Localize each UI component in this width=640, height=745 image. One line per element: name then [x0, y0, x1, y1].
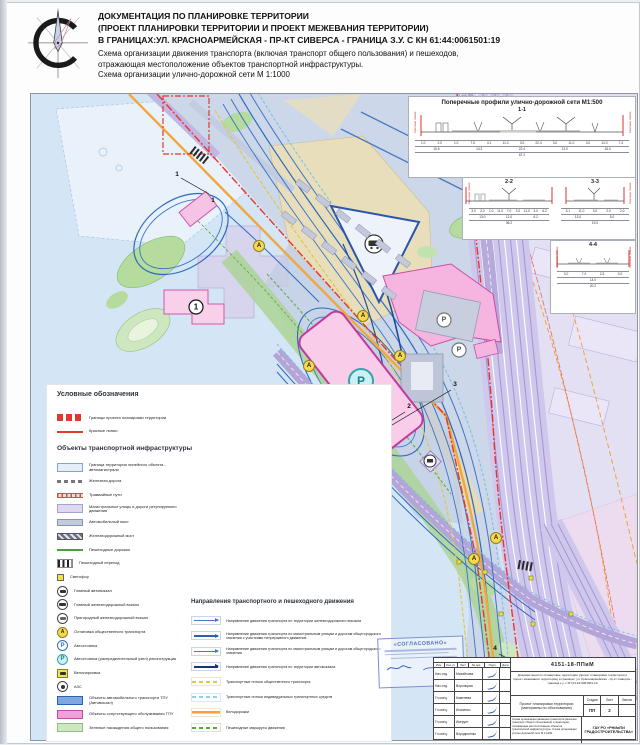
- swatch-arr-mag: [191, 647, 221, 656]
- legend-item-label: Автостоянка: [74, 644, 97, 648]
- swatch-dash-cyan: [191, 693, 221, 702]
- title-block: Изм.Кол.уч.Лист№ док.Подп.Дата Нач.отд.М…: [433, 657, 636, 740]
- suburban-station-icon: [57, 613, 68, 624]
- stage-label: Стадия: [584, 696, 601, 704]
- dimension-value: 6.2: [522, 215, 549, 220]
- titleblock-row: Нач.отд.Воронцова: [434, 680, 510, 692]
- legend-item-label: Красные линии: [89, 429, 117, 433]
- legend-item: Главный железнодорожный вокзал: [57, 598, 189, 612]
- legend-item: Пригородный железнодорожный вокзал: [57, 612, 189, 626]
- signature: [486, 730, 497, 738]
- scan-edge-shadow: [0, 0, 7, 744]
- dimension-row: 15.614.322.413.015.4: [415, 146, 629, 152]
- signature: [486, 682, 497, 690]
- legend-item: Границы проекта планировки территории: [57, 411, 217, 425]
- titleblock-header-cell: Дата: [501, 663, 510, 667]
- legend-item: Транспортные потоки общественного трансп…: [191, 674, 389, 689]
- legend-item: Автомобильный мост: [57, 516, 189, 530]
- legend-item: Зеленые насаждения общего пользования: [57, 721, 189, 735]
- swatch-red-blocks: [57, 414, 83, 421]
- legend-item: Граница территории линейного объекта - а…: [57, 461, 189, 475]
- signature: [486, 718, 497, 726]
- legend-item: Направление движения транспорта по магис…: [191, 628, 389, 643]
- red-lines-label: Красные линии: [628, 112, 632, 133]
- legend-item-label: Главный автовокзал: [74, 589, 112, 593]
- profiles-panel-3: 4-4 Красные линии Красные линии 3.07.02.…: [550, 240, 636, 314]
- role-cell: Нач.отд.: [434, 680, 455, 691]
- swatch-tram-line: [57, 493, 83, 498]
- swatch-arr-avto: [191, 662, 221, 671]
- bike-parking-icon: [57, 669, 68, 678]
- section-label: 3-3: [555, 179, 635, 185]
- profile-section-1-1: 1-1 Красные линии Красные линии 1.02.01.…: [409, 107, 635, 157]
- dimension-value: 1.0: [448, 141, 464, 146]
- name-cell: Имгрунт: [455, 716, 483, 727]
- dimension-value: 2.0: [615, 209, 629, 214]
- role-cell: Нач.отд.: [434, 668, 455, 679]
- cut-label-1: 1: [211, 197, 215, 204]
- profile-drawing-1-1: [416, 114, 628, 140]
- legend-item: Транспортные потоки индивидуальных транс…: [191, 689, 389, 704]
- glyph: [61, 685, 65, 689]
- approval-stamp-title: «СОГЛАСОВАНО»: [378, 640, 462, 649]
- dimension-value: 11.0: [575, 209, 589, 214]
- dimension-value: 22.4: [530, 141, 546, 146]
- role-cell: Гл.спец.: [434, 728, 455, 739]
- dimension-value: 15.4: [586, 147, 629, 152]
- swatch-box-purple: [57, 504, 83, 513]
- swatch-arr-zhd: [191, 616, 221, 625]
- dimension-row: 3.02.01.011.07.03.011.03.06.2: [469, 208, 549, 214]
- date-cell: [500, 704, 510, 715]
- red-lines-label: Красные линии: [628, 183, 632, 204]
- legend-item-label: Главный железнодорожный вокзал: [74, 603, 139, 607]
- glyph: [59, 603, 66, 607]
- dimension-value: 3.0: [580, 141, 596, 146]
- legend-item: Магистральные улицы и дороги регулируемо…: [57, 502, 189, 516]
- document-description: Документация по планировке территории (п…: [510, 672, 635, 696]
- signature-cell: [483, 728, 500, 739]
- swatch-box-green: [57, 723, 83, 732]
- red-lines-label: Красные линии: [467, 183, 471, 204]
- date-cell: [500, 668, 510, 679]
- red-lines-label: Красные линии: [413, 112, 417, 133]
- dimension-total: 87.2: [415, 152, 629, 158]
- legend-panel: Условные обозначения Границы проекта пла…: [46, 384, 392, 742]
- legend-objects-list: Граница территории линейного объекта - а…: [57, 461, 189, 735]
- role-cell: Гл.спец.: [434, 692, 455, 703]
- titleblock-row: Гл.спец.Имгрунт: [434, 716, 510, 728]
- date-cell: [500, 716, 510, 727]
- legend-item: Железная дорога: [57, 475, 189, 489]
- doc-subtitle-line: (ПРОЕКТ ПЛАНИРОВКИ ТЕРРИТОРИИ И ПРОЕКТ М…: [98, 22, 636, 34]
- name-cell: Каменева: [455, 692, 483, 703]
- dimension-value: 3.0: [611, 272, 629, 277]
- legend-item: Пешеходный переход: [57, 557, 189, 571]
- swatch-bridge-auto: [57, 519, 83, 526]
- titleblock-row: Нач.отд.Михайлова: [434, 668, 510, 680]
- document-number: 4151-18-ППиМ: [510, 658, 635, 672]
- dimension-value: 3.0: [513, 209, 522, 214]
- stop-label: А: [257, 243, 262, 249]
- arrow-glyph: [194, 666, 218, 668]
- dimension-value: 3.0: [588, 209, 602, 214]
- sheet-name: Схема организации движения транспорта (в…: [510, 717, 582, 743]
- dimension-value: 14.0: [596, 141, 612, 146]
- dimension-value: 13.0: [469, 215, 496, 220]
- arrow-glyph: [194, 620, 218, 621]
- titleblock-row: Гл.спец.Каменева: [434, 692, 510, 704]
- stop-label: А: [494, 535, 499, 541]
- cut-label-1: 1: [175, 171, 179, 178]
- north-compass: [26, 6, 90, 82]
- dimension-value: 3.1: [561, 209, 575, 214]
- dimension-value: 3.0: [547, 141, 563, 146]
- section-label: 4-4: [551, 242, 635, 248]
- legend-item-label: Транспортные потоки общественного трансп…: [226, 680, 310, 684]
- project-name: Проект планировки территории (материалы …: [510, 696, 584, 716]
- name-cell: Воронцова: [455, 680, 483, 691]
- date-cell: [500, 692, 510, 703]
- scheme-desc-line2: отражающая местоположение объектов транс…: [98, 60, 636, 71]
- dimension-value: 7.0: [505, 209, 514, 214]
- dimension-value: 15.6: [415, 147, 458, 152]
- legend-item: Объекты сопутствующего обслуживания ТПУ: [57, 707, 189, 721]
- profile-section-3-3: 3-3 Красные линии 3.111.03.02.02.0 13.05…: [555, 178, 635, 239]
- parking-label: Р: [442, 317, 447, 324]
- arrow-glyph: [194, 651, 218, 652]
- stage-table: Стадия Лист Листов ПП 2: [584, 696, 635, 716]
- date-cell: [500, 680, 510, 691]
- legend-item: Трамвайные пути: [57, 488, 189, 502]
- title-block-info: 4151-18-ППиМ Документация по планировке …: [510, 658, 635, 739]
- swatch-red-line: [57, 431, 83, 433]
- signature: [486, 694, 497, 702]
- legend-item-label: Граница территории линейного объекта - а…: [89, 463, 189, 472]
- legend-item: Красные линии: [57, 425, 217, 439]
- legend-item: Железнодорожный мост: [57, 529, 189, 543]
- dimension-row: 14.0: [557, 277, 629, 283]
- legend-item-label: Направление движения транспорта по терри…: [226, 665, 335, 669]
- title-block-signatures: Изм.Кол.уч.Лист№ док.Подп.Дата Нач.отд.М…: [434, 658, 511, 739]
- legend-directions-list: Направление движения транспорта по терри…: [191, 613, 389, 735]
- legend-item-label: Светофор: [70, 575, 89, 579]
- legend-item-label: Пригородный железнодорожный вокзал: [74, 616, 148, 620]
- dimension-value: 6.2: [540, 209, 549, 214]
- gas-station-icon: [57, 681, 68, 692]
- legend-item-label: Пешеходный переход: [79, 561, 119, 565]
- legend-item: Объекты автомобильного транспорта ТПУ (А…: [57, 694, 189, 708]
- legend-item-label: Объекты сопутствующего обслуживания ТПУ: [89, 712, 174, 716]
- doc-title-line: ДОКУМЕНТАЦИЯ ПО ПЛАНИРОВКЕ ТЕРРИТОРИИ: [98, 10, 636, 22]
- dimension-value: 3.0: [557, 272, 575, 277]
- legend-item-label: Границы проекта планировки территории: [89, 416, 166, 420]
- legend-item-label: Автомобильный мост: [89, 520, 129, 524]
- stop-label: А: [398, 353, 403, 359]
- signature-cell: [483, 704, 500, 715]
- swatch-zebra: [57, 559, 73, 568]
- legend-item: Направление движения транспорта по магис…: [191, 644, 389, 659]
- swatch-box-blue: [57, 696, 83, 705]
- legend-item-label: Направление движения транспорта по магис…: [226, 647, 389, 655]
- profile-section-2-2: 2-2 Красные линии 3.02.01.011.07.03.011.…: [463, 178, 555, 239]
- legend-item-label: Зеленые насаждения общего пользования: [89, 726, 168, 730]
- dimension-value: 13.0: [561, 215, 595, 220]
- profile-section-4-4: 4-4 Красные линии Красные линии 3.07.02.…: [551, 242, 635, 288]
- dimension-value: 2.0: [478, 209, 487, 214]
- glyph: [60, 590, 66, 593]
- cut-label-3: 3: [453, 381, 457, 388]
- legend-item-label: Транспортные потоки индивидуальных транс…: [226, 695, 332, 699]
- legend-item: Пешеходные дорожки: [57, 543, 189, 557]
- name-cell: Вородиченко: [455, 728, 483, 739]
- legend-directions-title: Направления транспортного и пешеходного …: [191, 599, 387, 605]
- legend-item-label: Направление движения транспорта по магис…: [226, 632, 389, 640]
- dimension-value: 3.0: [531, 209, 540, 214]
- dimension-total: 20.2: [557, 283, 629, 289]
- signature-cell: [483, 668, 500, 679]
- dimension-total: 36.2: [469, 220, 549, 226]
- stop-label: А: [307, 363, 312, 369]
- dimension-value: 12.0: [496, 215, 523, 220]
- sheets-label: Листов: [619, 696, 635, 704]
- signature-cell: [483, 680, 500, 691]
- signature: [486, 706, 497, 714]
- signature-cell: [483, 692, 500, 703]
- doc-boundaries-line: В ГРАНИЦАХ:УЛ. КРАСНОАРМЕЙСКАЯ - ПР-КТ С…: [98, 34, 636, 46]
- dimension-value: 2.5: [593, 272, 611, 277]
- bus-terminal-icon: [57, 586, 68, 597]
- dimension-value: 11.0: [497, 141, 513, 146]
- legend-item-label: Велопарковка: [74, 671, 100, 675]
- dimension-total: 19.0: [561, 220, 629, 226]
- dimension-value: 13.0: [543, 147, 586, 152]
- glyph: [60, 617, 66, 620]
- red-lines-label: Красные линии: [628, 247, 632, 268]
- swatch-arr-nepr: [191, 631, 221, 640]
- cut-label-4: 4: [493, 645, 497, 652]
- swatch-green-line: [57, 549, 83, 551]
- stop-label: А: [472, 556, 477, 562]
- sheet-label: Лист: [601, 696, 618, 704]
- titleblock-header-cell: № док.: [469, 663, 485, 667]
- section-label: 1-1: [409, 107, 635, 113]
- legend-item-label: Железная дорога: [89, 479, 121, 483]
- legend-item: АОстановка общественного транспорта: [57, 625, 189, 639]
- railway-station-icon: [57, 599, 68, 610]
- document-header: ДОКУМЕНТАЦИЯ ПО ПЛАНИРОВКЕ ТЕРРИТОРИИ (П…: [98, 10, 636, 81]
- profiles-title: Поперечные профили улично-дорожной сети …: [409, 99, 635, 106]
- traffic-light-icon: [57, 574, 64, 581]
- swatch-dash-green: [191, 723, 221, 732]
- legend-objects-title: Объекты транспортной инфраструктуры: [57, 445, 192, 452]
- titleblock-row: Гл.спец.Исаченко: [434, 704, 510, 716]
- swatch-line-orange: [191, 708, 221, 717]
- legend-item-label: Велодорожки: [226, 710, 249, 714]
- dimension-value: 11.0: [522, 209, 531, 214]
- dimension-row: 1.02.01.07.54.111.03.022.43.011.03.014.0…: [415, 140, 629, 146]
- transit-stop-icon: А: [57, 627, 68, 638]
- dimension-row: 3.07.02.53.0: [557, 271, 629, 277]
- titleblock-row: Гл.спец.Вородиченко: [434, 728, 510, 739]
- legend-item: Пешеходные маршруты движения: [191, 720, 389, 735]
- titleblock-header-cell: Подп.: [485, 663, 501, 667]
- role-cell: Гл.спец.: [434, 716, 455, 727]
- legend-item-label: Магистральные улицы и дороги регулируемо…: [89, 505, 189, 514]
- legend-item-label: Остановка общественного транспорта: [74, 630, 145, 634]
- legend-item-label: Пешеходные маршруты движения: [226, 726, 285, 730]
- scheme-desc-line1: Схема организации движения транспорта (в…: [98, 49, 636, 60]
- legend-item-label: АЗС: [74, 685, 82, 689]
- arrow-glyph: [194, 635, 218, 637]
- dimension-value: 1.0: [415, 141, 431, 146]
- parking-hub-icon: Р: [57, 654, 68, 665]
- dimension-row: 13.012.06.2: [469, 214, 549, 220]
- dimension-row: 3.111.03.02.02.0: [561, 208, 629, 214]
- dimension-value: 3.0: [469, 209, 478, 214]
- legend-item-label: Автостоянка (распределительный узел) рек…: [74, 657, 176, 661]
- date-cell: [500, 728, 510, 739]
- legend-item-label: Железнодорожный мост: [89, 534, 134, 538]
- sheet-value: 2: [601, 705, 618, 716]
- role-cell: Гл.спец.: [434, 704, 455, 715]
- parking-icon: Р: [57, 640, 68, 651]
- dimension-row: 13.05.0: [561, 214, 629, 220]
- legend-title: Условные обозначения: [57, 391, 139, 398]
- stage-value: ПП: [584, 705, 601, 716]
- profiles-panel-1: Поперечные профили улично-дорожной сети …: [408, 96, 636, 178]
- parking-label: Р: [457, 347, 462, 354]
- dimension-value: 1.0: [487, 209, 496, 214]
- dimension-value: 5.0: [595, 215, 629, 220]
- dimension-value: 11.0: [563, 141, 579, 146]
- titleblock-header-cell: Кол.уч.: [445, 663, 458, 667]
- title-block-rows: Нач.отд.МихайловаНач.отд.ВоронцоваГл.спе…: [434, 668, 510, 739]
- dimension-value: 11.0: [496, 209, 505, 214]
- stamp-text-line: [385, 652, 449, 656]
- profiles-panel-2: 2-2 Красные линии 3.02.01.011.07.03.011.…: [462, 177, 636, 240]
- organization-name: ГАУ РО «РНИиПИ ГРАДОСТРОИТЕЛЬСТВА»: [582, 717, 635, 743]
- signature-cell: [483, 716, 500, 727]
- section-label: 2-2: [463, 179, 555, 185]
- legend-item: Велодорожки: [191, 705, 389, 720]
- dimension-value: 22.4: [501, 147, 544, 152]
- bus-terminal-number: 1: [194, 303, 199, 312]
- glyph: [60, 672, 66, 675]
- legend-item: Главный автовокзал: [57, 584, 189, 598]
- legend-item: АЗС: [57, 680, 189, 694]
- legend-item: Направление движения транспорта по терри…: [191, 659, 389, 674]
- signature: [486, 670, 497, 678]
- swatch-box-lblue: [57, 463, 83, 472]
- dimension-value: 14.0: [557, 278, 629, 283]
- swatch-bridge-rail: [57, 533, 83, 540]
- dimension-value: 4.1: [481, 141, 497, 146]
- dimension-value: 3.0: [514, 141, 530, 146]
- name-cell: Михайлова: [455, 668, 483, 679]
- dimension-value: 7.0: [575, 272, 593, 277]
- titleblock-header-cell: Изм.: [434, 663, 445, 667]
- cut-label-2: 2: [407, 403, 411, 410]
- dimension-value: 7.5: [464, 141, 480, 146]
- stop-label: А: [361, 313, 366, 319]
- scheme-scale-line: Схема организации улично-дорожной сети М…: [98, 70, 636, 81]
- legend-item-label: Трамвайные пути: [89, 493, 122, 497]
- legend-boundaries-list: Границы проекта планировки территорииКра…: [57, 411, 217, 438]
- legend-item: РАвтостоянка (распределительный узел) ре…: [57, 653, 189, 667]
- swatch-rail-line: [57, 480, 83, 483]
- titleblock-header-cell: Лист: [458, 663, 469, 667]
- dimension-value: 2.0: [431, 141, 447, 146]
- scanned-sheet: ДОКУМЕНТАЦИЯ ПО ПЛАНИРОВКЕ ТЕРРИТОРИИ (П…: [0, 0, 640, 744]
- legend-item-label: Направление движения транспорта по терри…: [226, 619, 361, 623]
- swatch-box-pink: [57, 710, 83, 719]
- legend-item: РАвтостоянка: [57, 639, 189, 653]
- legend-item-label: Пешеходные дорожки: [89, 548, 130, 552]
- legend-item: Направление движения транспорта по терри…: [191, 613, 389, 628]
- legend-item: Светофор: [57, 571, 189, 585]
- dimension-value: 7.4: [613, 141, 629, 146]
- legend-item-label: Объекты автомобильного транспорта ТПУ (А…: [89, 696, 189, 705]
- legend-item: Велопарковка: [57, 666, 189, 680]
- name-cell: Исаченко: [455, 704, 483, 715]
- sheets-value: [619, 705, 635, 716]
- dimension-value: 2.0: [602, 209, 616, 214]
- dimension-value: 14.3: [458, 147, 501, 152]
- red-lines-label: Красные линии: [555, 247, 559, 268]
- swatch-dash-yellow: [191, 677, 221, 686]
